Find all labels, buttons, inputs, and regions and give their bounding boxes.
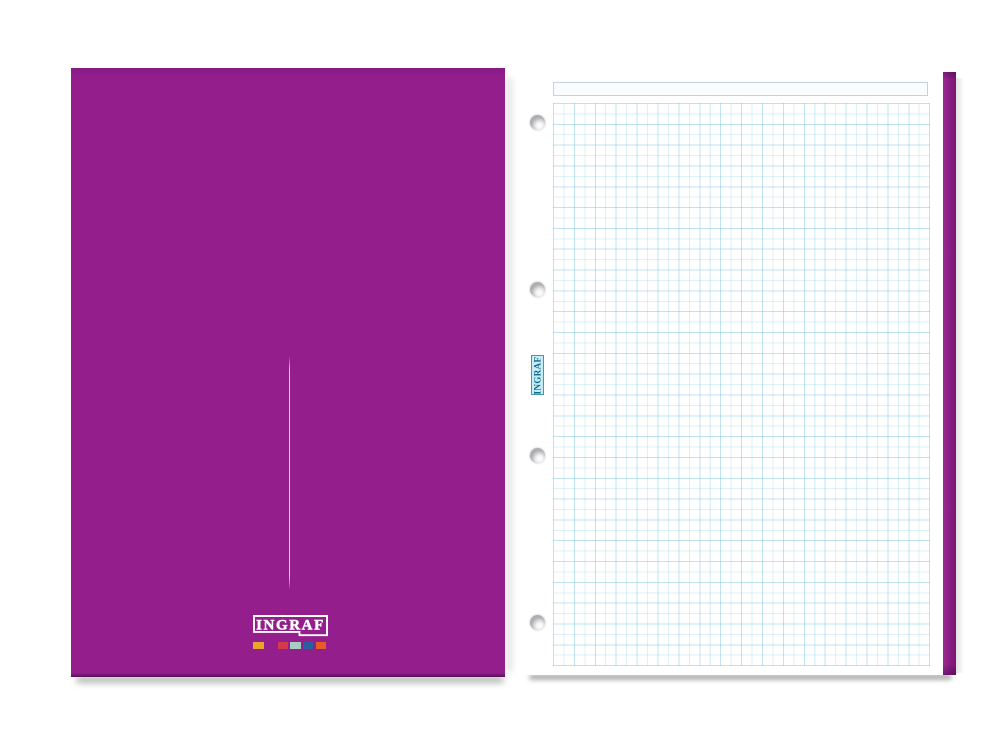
svg-text:INGRAF: INGRAF [256, 618, 325, 634]
